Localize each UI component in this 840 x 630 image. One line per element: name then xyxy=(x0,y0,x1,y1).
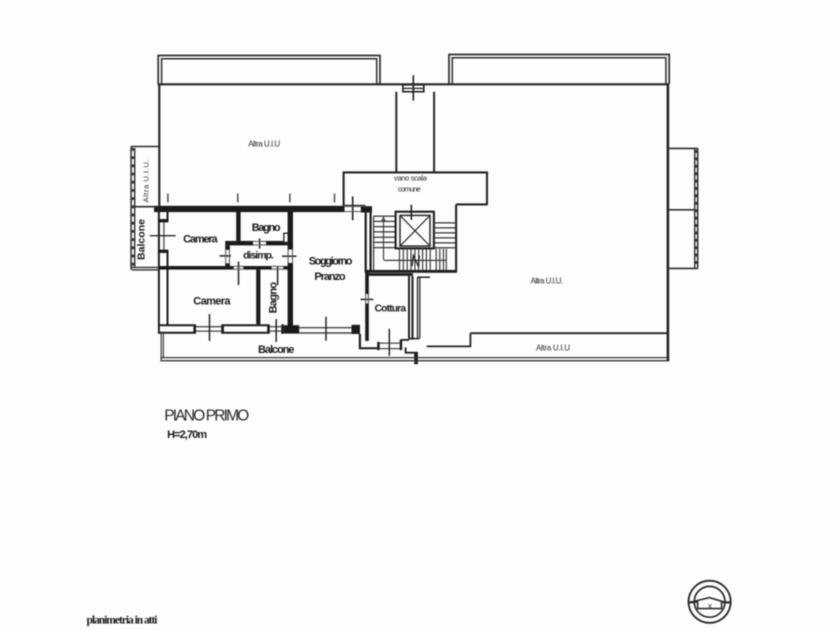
svg-text:Camera: Camera xyxy=(183,234,218,246)
svg-text:Balcone: Balcone xyxy=(258,344,294,356)
svg-text:Altra U.I.U.: Altra U.I.U. xyxy=(141,160,150,203)
svg-text:Pranzo: Pranzo xyxy=(314,271,345,283)
svg-text:vano scala: vano scala xyxy=(394,173,428,182)
svg-text:Bagno: Bagno xyxy=(252,222,281,234)
svg-text:Camera: Camera xyxy=(193,296,231,308)
svg-text:Altra U.I.U: Altra U.I.U xyxy=(248,140,280,149)
svg-text:planimetria in atti: planimetria in atti xyxy=(87,615,159,627)
svg-text:H=2,70m: H=2,70m xyxy=(167,429,207,441)
svg-text:Altra U.I.U.: Altra U.I.U. xyxy=(531,277,563,286)
svg-text:comune: comune xyxy=(398,185,421,194)
svg-text:Bagno: Bagno xyxy=(267,282,279,314)
svg-text:Altra U.I.U: Altra U.I.U xyxy=(536,343,570,352)
svg-text:Balcone: Balcone xyxy=(136,219,148,260)
svg-text:Cottura: Cottura xyxy=(375,304,407,315)
svg-text:Soggiorno: Soggiorno xyxy=(309,256,353,268)
svg-text:disimp.: disimp. xyxy=(243,250,274,262)
svg-text:PIANO PRIMO: PIANO PRIMO xyxy=(164,408,249,425)
